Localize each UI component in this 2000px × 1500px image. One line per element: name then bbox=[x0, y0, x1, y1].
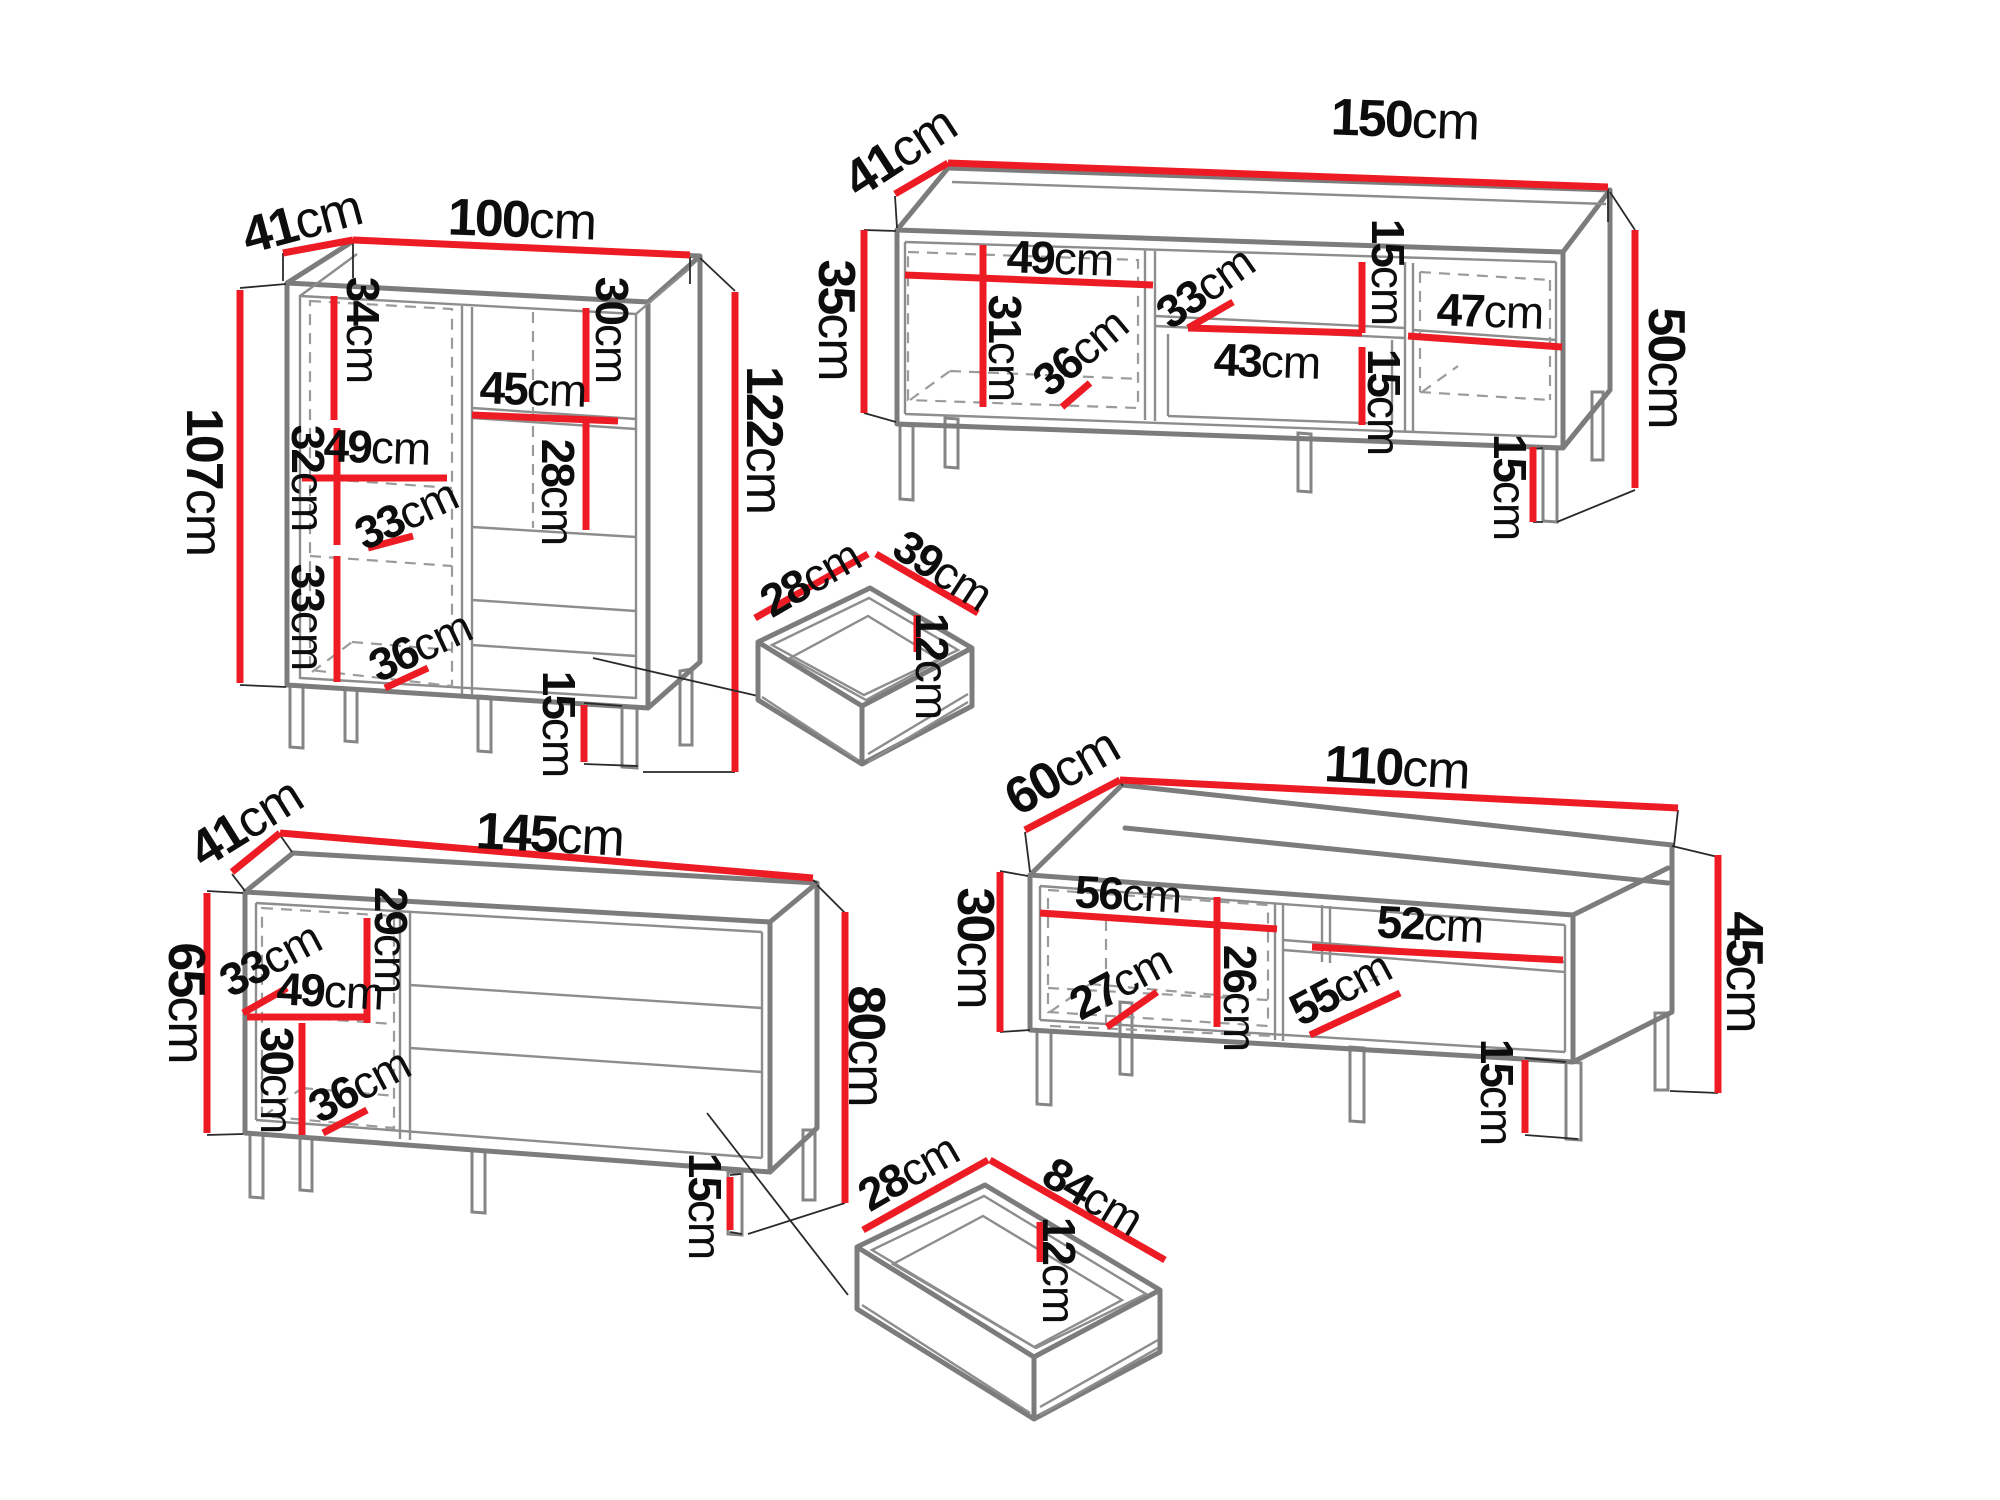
dim-label-total-height: 122cm bbox=[735, 366, 793, 514]
dim-label-width: 145cm bbox=[475, 802, 626, 868]
dim-label-right-top: 30cm bbox=[586, 277, 638, 384]
dim-label-legs: 15cm bbox=[533, 671, 585, 778]
dim-label-right-width: 52cm bbox=[1375, 895, 1484, 953]
dim-label-middle-width: 43cm bbox=[1213, 333, 1321, 389]
dim-label-lower-height: 30cm bbox=[251, 1027, 303, 1134]
dim-label-door-height: 31cm bbox=[979, 295, 1031, 402]
dim-label-width: 110cm bbox=[1323, 735, 1471, 801]
dim-label-total-height: 50cm bbox=[1637, 307, 1695, 428]
dim-label-door-width: 56cm bbox=[1073, 865, 1182, 923]
dim-label-left-height: 30cm bbox=[946, 887, 1004, 1008]
dim-label-right-width: 47cm bbox=[1436, 283, 1544, 339]
dim-label-left-width: 49cm bbox=[323, 419, 431, 475]
dim-label-drawer-upper: 15cm bbox=[1362, 219, 1414, 326]
dim-label-body-height: 107cm bbox=[175, 408, 233, 556]
dim-label-total-height: 80cm bbox=[837, 985, 895, 1106]
dim-label-door-height: 26cm bbox=[1214, 945, 1266, 1052]
dim-label-shelf-top: 34cm bbox=[337, 277, 389, 384]
dim-label-shelf-bottom: 33cm bbox=[282, 564, 334, 671]
dim-label-left-height: 35cm bbox=[807, 259, 865, 380]
dim-label-legs: 15cm bbox=[1471, 1039, 1523, 1146]
dim-label-drawer-lower: 15cm bbox=[1358, 349, 1410, 456]
furniture-dimension-diagram: 41cm 100cm 107cm 34cm 32cm 33cm 49cm 45c… bbox=[0, 0, 2000, 1500]
dim-label-left-height: 65cm bbox=[157, 942, 215, 1063]
dim-label-upper-height: 29cm bbox=[365, 887, 417, 994]
diagram-svg: 41cm 100cm 107cm 34cm 32cm 33cm 49cm 45c… bbox=[0, 0, 2000, 1500]
dim-label-legs: 15cm bbox=[1484, 434, 1536, 541]
dim-label-height: 12cm bbox=[1033, 1217, 1085, 1324]
dim-label-right-middle: 28cm bbox=[532, 439, 584, 546]
dim-label-door-width: 49cm bbox=[1006, 230, 1114, 286]
dim-label-total-height: 45cm bbox=[1715, 911, 1773, 1032]
dim-label-width: 150cm bbox=[1330, 88, 1480, 151]
dim-label-width: 100cm bbox=[447, 188, 597, 251]
dim-label-height: 12cm bbox=[906, 613, 958, 720]
dim-label-right-width: 45cm bbox=[479, 361, 587, 417]
dim-label-legs: 15cm bbox=[679, 1153, 731, 1260]
